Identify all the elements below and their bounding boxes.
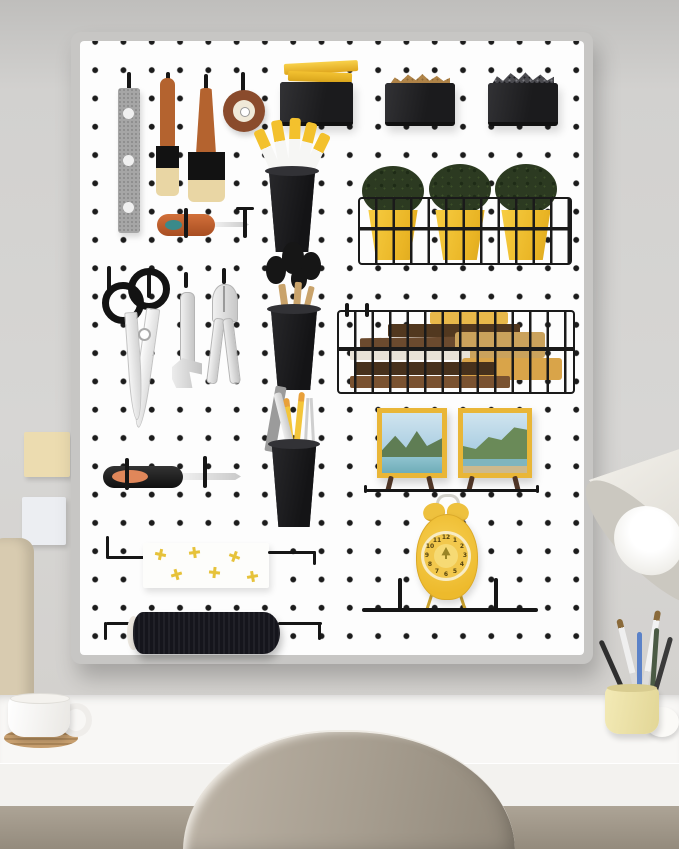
- brush-cup-rim: [607, 684, 657, 692]
- peg-hook: [241, 72, 245, 92]
- towel-pattern-cross: [188, 546, 200, 558]
- cup-rim: [265, 166, 319, 176]
- peg-hook: [203, 456, 207, 488]
- towel-pattern-cross: [227, 549, 241, 563]
- brush-cup-yellow: [605, 686, 659, 734]
- clock-numeral: 2: [457, 543, 467, 550]
- scene: 12 1 2 3 4 5 6 7 8 9 10 11: [0, 0, 679, 849]
- peg-hook: [243, 208, 247, 238]
- thread-spool: [133, 612, 280, 654]
- towel-rod-right: [268, 551, 316, 554]
- cup-rim: [268, 439, 320, 449]
- clock-numeral: 11: [432, 537, 442, 544]
- spool-rod-hook: [318, 622, 321, 640]
- clock-numeral: 5: [450, 568, 460, 575]
- scissors-ring: [128, 268, 170, 310]
- large-brush-ferrule: [188, 152, 225, 180]
- clock-face: 12 1 2 3 4 5 6 7 8 9 10 11: [421, 531, 471, 581]
- planter-wire-basket: [358, 197, 572, 265]
- clock-numeral: 10: [425, 543, 435, 550]
- towel-pattern-cross: [154, 548, 167, 561]
- small-brush-handle: [160, 78, 175, 148]
- ruler-hole: [123, 108, 134, 119]
- clock-rail-post: [398, 578, 402, 610]
- clock-rail: [362, 608, 538, 612]
- pliers-slit: [223, 286, 225, 312]
- clock-numeral: 8: [425, 561, 435, 568]
- towel-pattern-cross: [170, 568, 184, 582]
- wrench-shaft: [180, 292, 195, 366]
- cup-rim: [267, 304, 321, 314]
- frame-rail: [366, 489, 538, 492]
- clock-numeral: 3: [460, 552, 470, 559]
- storage-bin-2: [385, 83, 455, 126]
- peg-hook: [236, 207, 254, 210]
- spool-rod: [278, 622, 322, 625]
- sticky-note-white: [22, 497, 66, 545]
- clock-numeral: 7: [432, 568, 442, 575]
- pliers-head: [212, 284, 238, 322]
- sticky-note-cream: [24, 432, 70, 477]
- small-brush-bristles: [156, 168, 179, 196]
- clock-rail-post: [494, 578, 498, 610]
- small-brush-ferrule: [156, 146, 179, 168]
- towel: [143, 543, 269, 588]
- ruler-hole: [123, 155, 134, 166]
- book-wire-basket: [337, 310, 575, 394]
- mug-rim: [10, 693, 70, 704]
- tape-roll-center: [240, 107, 250, 117]
- screwdriver-shaft: [183, 473, 241, 480]
- peg-hook: [184, 272, 188, 288]
- frame-rail-end: [364, 485, 367, 493]
- large-brush-bristles: [188, 180, 225, 202]
- spool-rod-hook: [104, 622, 107, 640]
- towel-pattern-cross: [208, 566, 220, 578]
- scissors-pivot: [138, 328, 151, 341]
- towel-pattern-cross: [246, 570, 259, 583]
- ruler-hole: [123, 202, 134, 213]
- peg-hook: [125, 458, 129, 490]
- photo-beach: [463, 466, 527, 473]
- screwdriver-grip: [112, 470, 148, 483]
- peg-hook: [204, 74, 208, 90]
- awl-grip-dot: [165, 220, 182, 230]
- clock-numeral: 4: [457, 561, 467, 568]
- picture-frame-2: [458, 408, 532, 478]
- picture-frame-1: [377, 408, 447, 478]
- peg-hook: [184, 208, 188, 238]
- towel-rod-hook: [106, 536, 109, 558]
- peg-hook: [222, 268, 226, 284]
- frame-rail-end: [536, 485, 539, 493]
- towel-rod-right-end: [313, 551, 316, 565]
- clock-numeral: 6: [441, 571, 451, 578]
- clock-numeral: 9: [422, 552, 432, 559]
- storage-bin-3: [488, 83, 558, 126]
- photo-lake: [382, 457, 442, 473]
